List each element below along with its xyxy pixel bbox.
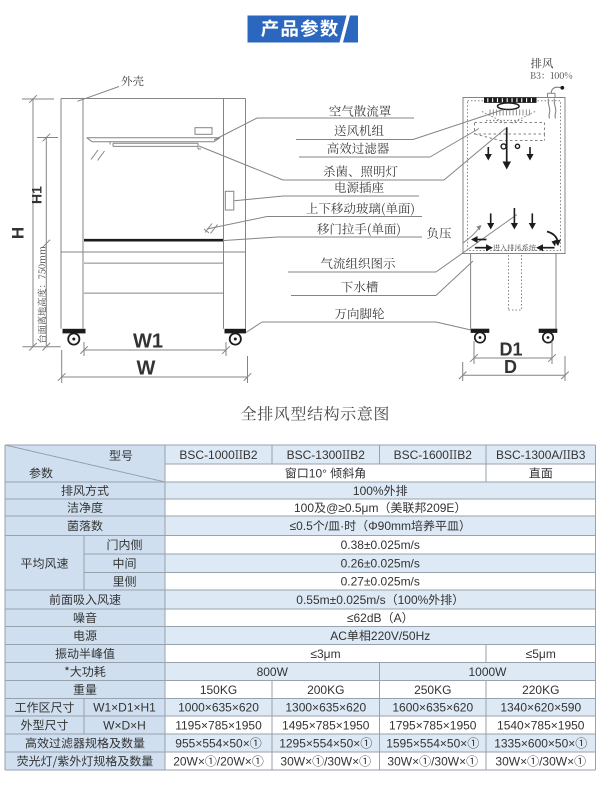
svg-text:/20W×: /20W× [217, 755, 252, 769]
svg-text:30W×: 30W× [495, 755, 527, 769]
svg-text:100%: 100% [398, 593, 429, 607]
svg-text:150KG: 150KG [200, 683, 237, 697]
svg-text:1795×785×1950: 1795×785×1950 [389, 718, 477, 732]
svg-text:BSC-1000: BSC-1000 [179, 448, 235, 462]
svg-text:≤0.5: ≤0.5 [290, 519, 314, 533]
svg-text:800W: 800W [257, 665, 289, 679]
svg-text:100: 100 [294, 501, 314, 515]
svg-text:≤62dB: ≤62dB [347, 611, 382, 625]
svg-text:Φ90mm: Φ90mm [368, 519, 411, 533]
svg-text:1340×620×590: 1340×620×590 [500, 701, 581, 715]
svg-text:W: W [137, 358, 156, 380]
svg-text:D: D [504, 357, 517, 377]
svg-text:200KG: 200KG [307, 683, 344, 697]
svg-text:100%: 100% [353, 484, 384, 498]
svg-text:BSC-1300: BSC-1300 [287, 448, 343, 462]
svg-text:220V/50Hz: 220V/50Hz [371, 629, 430, 643]
svg-text:B3: B3 [571, 448, 586, 462]
svg-text:W1×D1×H1: W1×D1×H1 [93, 701, 156, 715]
svg-text:0.26±0.025m/s: 0.26±0.025m/s [341, 557, 420, 571]
svg-text:@≥0.5μm: @≥0.5μm [326, 501, 378, 515]
svg-text:1595×554×50×: 1595×554×50× [386, 737, 467, 751]
svg-text:209E: 209E [426, 501, 454, 515]
svg-text:1000W: 1000W [468, 665, 507, 679]
svg-text:10°: 10° [309, 467, 327, 481]
svg-text:AC: AC [330, 629, 347, 643]
svg-text:H: H [9, 227, 28, 239]
svg-text:0.38±0.025m/s: 0.38±0.025m/s [341, 538, 420, 552]
svg-text:H1: H1 [29, 186, 45, 204]
svg-text:B2: B2 [243, 448, 258, 462]
svg-text:1540×785×1950: 1540×785×1950 [497, 718, 585, 732]
svg-text:A: A [394, 611, 402, 625]
svg-text:1335×600×50×: 1335×600×50× [494, 737, 575, 751]
svg-text:W1: W1 [133, 331, 163, 353]
svg-text:W×D×H: W×D×H [103, 718, 146, 732]
svg-text:1600×635×620: 1600×635×620 [392, 701, 473, 715]
svg-text:20W×: 20W× [173, 755, 205, 769]
svg-text:BSC-1600: BSC-1600 [394, 448, 450, 462]
svg-text:≤3μm: ≤3μm [310, 647, 340, 661]
svg-text:220KG: 220KG [522, 683, 559, 697]
svg-text:1000×635×620: 1000×635×620 [178, 701, 259, 715]
svg-text:30W×: 30W× [387, 755, 419, 769]
svg-text:1300×635×620: 1300×635×620 [285, 701, 366, 715]
svg-text:1495×785×1950: 1495×785×1950 [282, 718, 370, 732]
svg-text:30W×: 30W× [280, 755, 312, 769]
svg-text:0.27±0.025m/s: 0.27±0.025m/s [341, 575, 420, 589]
svg-text:955×554×50×: 955×554×50× [175, 737, 249, 751]
svg-text:·: · [340, 519, 344, 533]
svg-text:250KG: 250KG [414, 683, 451, 697]
svg-text:/30W×: /30W× [431, 755, 466, 769]
svg-text:1195×785×1950: 1195×785×1950 [175, 718, 262, 732]
svg-text:≤5μm: ≤5μm [526, 647, 556, 661]
svg-text:1295×554×50×: 1295×554×50× [279, 737, 360, 751]
svg-text:B2: B2 [457, 448, 472, 462]
svg-text:/30W×: /30W× [539, 755, 574, 769]
svg-text:BSC-1300A/: BSC-1300A/ [496, 448, 563, 462]
svg-text:B2: B2 [350, 448, 365, 462]
svg-text:0.55m±0.025m/s: 0.55m±0.025m/s [296, 593, 385, 607]
svg-text:/30W×: /30W× [324, 755, 359, 769]
